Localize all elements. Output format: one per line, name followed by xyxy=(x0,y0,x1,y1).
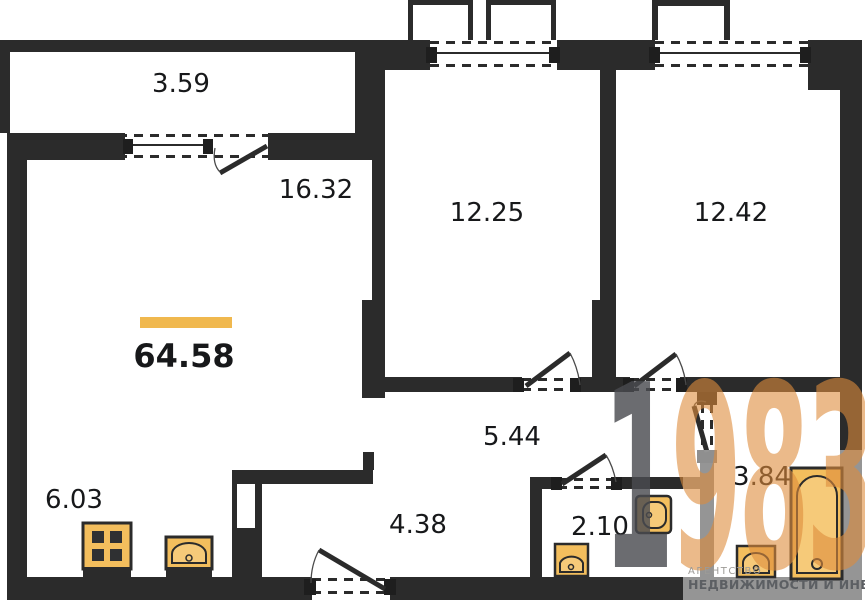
room-label-kitchen: 6.03 xyxy=(45,485,103,515)
stove-icon xyxy=(83,523,131,577)
room-label-balcony: 3.59 xyxy=(152,69,210,99)
room-label-corridor: 5.44 xyxy=(483,422,541,452)
agency-tagline-line2: НЕДВИЖИМОСТИ И ИНВЕСТИЦИЙ xyxy=(688,578,865,592)
floor-plan: 3.59 16.32 12.25 12.42 5.44 6.03 4.38 2.… xyxy=(0,0,865,600)
agency-logo-digits-983: 983 xyxy=(671,331,865,600)
wc-sink-icon xyxy=(555,544,588,576)
agency-tagline: АГЕНТСТВО НЕДВИЖИМОСТИ И ИНВЕСТИЦИЙ xyxy=(688,566,865,592)
total-area-accent-bar xyxy=(140,317,232,328)
agency-tagline-line1: АГЕНТСТВО xyxy=(688,566,865,578)
agency-logo-digit-1: 1 xyxy=(603,331,671,600)
room-label-hall: 4.38 xyxy=(389,510,447,540)
room-label-bedroom2: 12.42 xyxy=(694,198,768,228)
agency-logo: 1983 xyxy=(603,352,865,600)
room-label-bedroom1: 12.25 xyxy=(450,198,524,228)
kitchen-sink-icon xyxy=(166,537,212,577)
room-label-living: 16.32 xyxy=(279,175,353,205)
total-area-label: 64.58 xyxy=(133,337,234,375)
